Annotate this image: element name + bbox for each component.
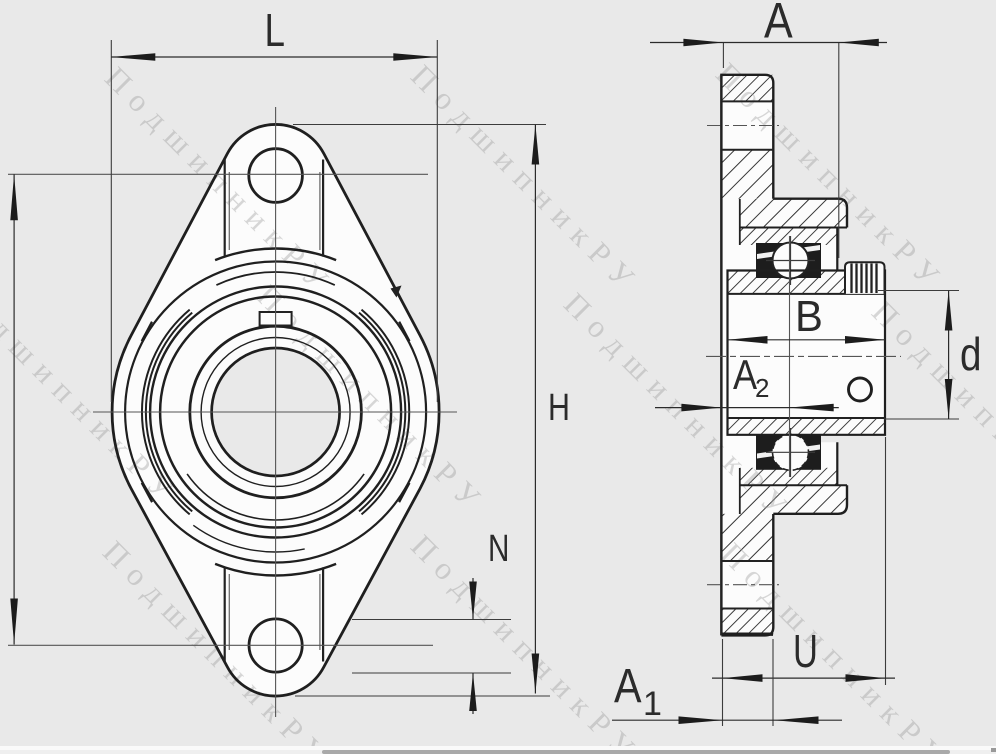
svg-text:d: d xyxy=(960,329,981,380)
svg-text:U: U xyxy=(793,625,818,677)
svg-text:H: H xyxy=(548,387,570,429)
svg-text:A: A xyxy=(764,0,793,48)
svg-text:A: A xyxy=(614,659,642,713)
svg-text:B: B xyxy=(795,292,823,341)
svg-text:2: 2 xyxy=(755,373,769,403)
svg-text:N: N xyxy=(488,528,509,570)
svg-text:L: L xyxy=(265,4,285,56)
svg-text:1: 1 xyxy=(643,685,662,723)
